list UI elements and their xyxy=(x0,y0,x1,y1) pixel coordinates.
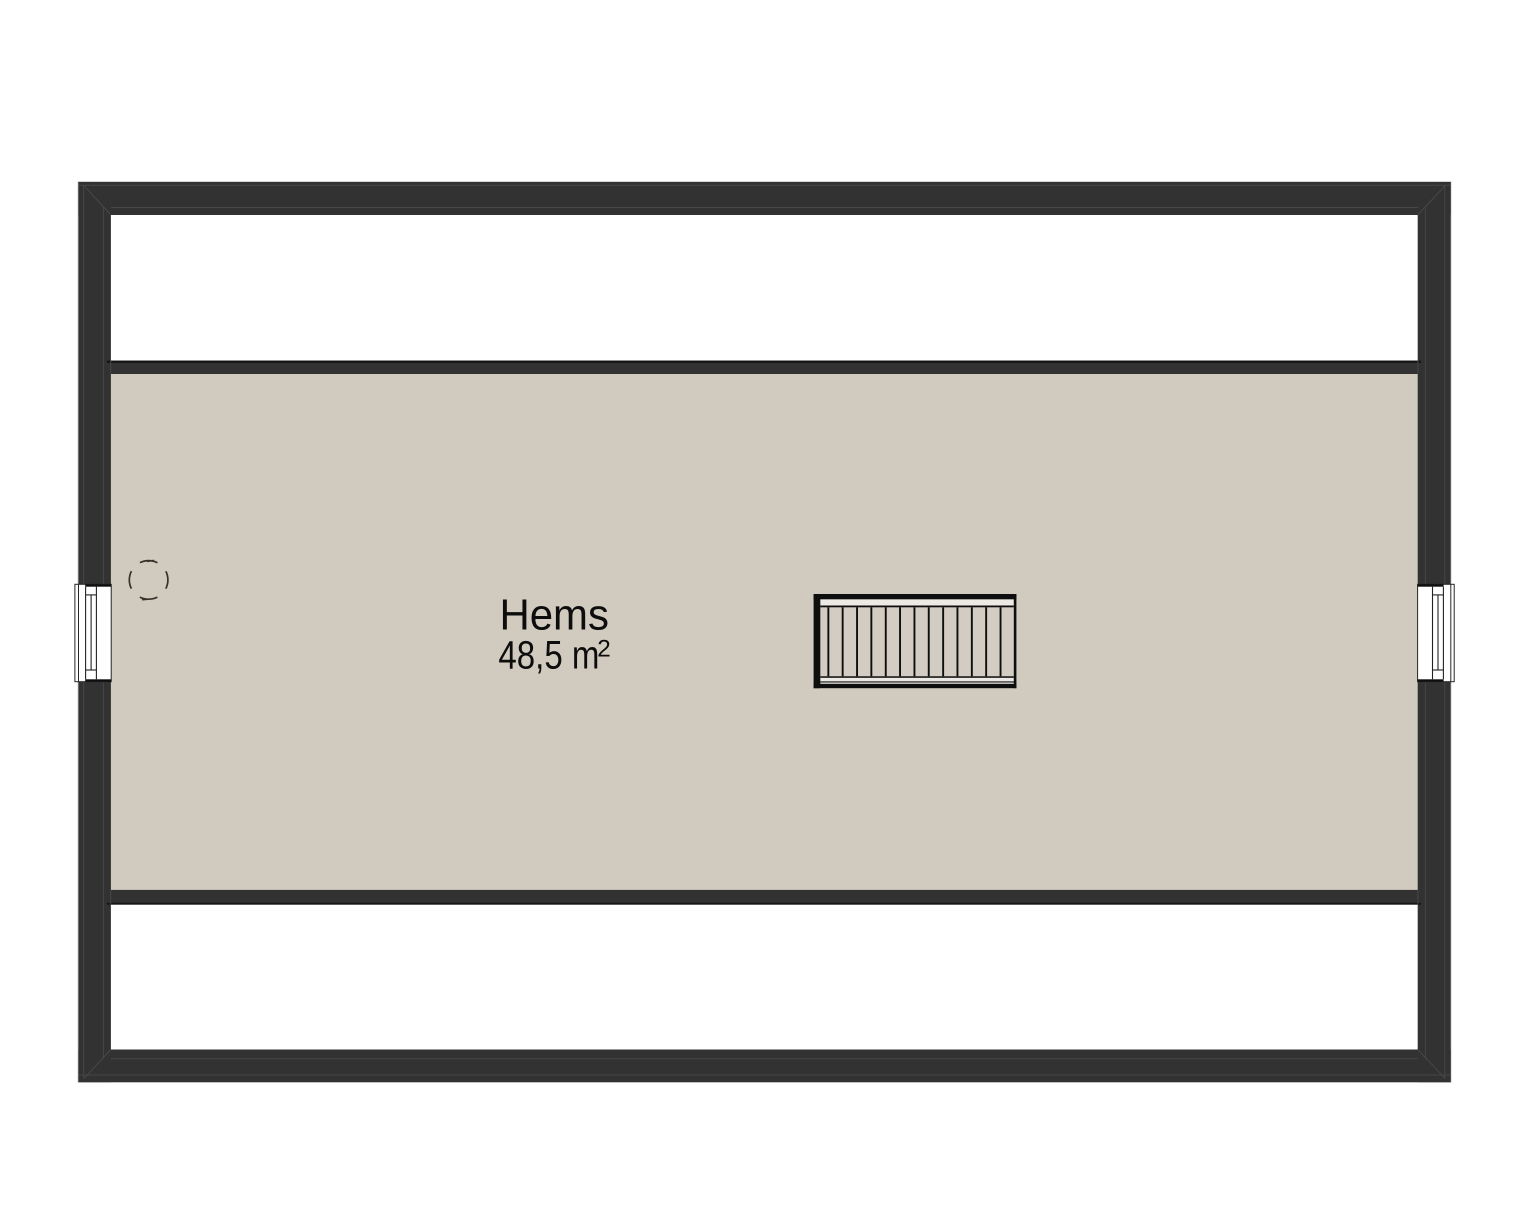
svg-text:Hems: Hems xyxy=(499,591,609,640)
svg-text:48,5 m: 48,5 m xyxy=(498,634,599,678)
svg-text:2: 2 xyxy=(597,636,611,663)
